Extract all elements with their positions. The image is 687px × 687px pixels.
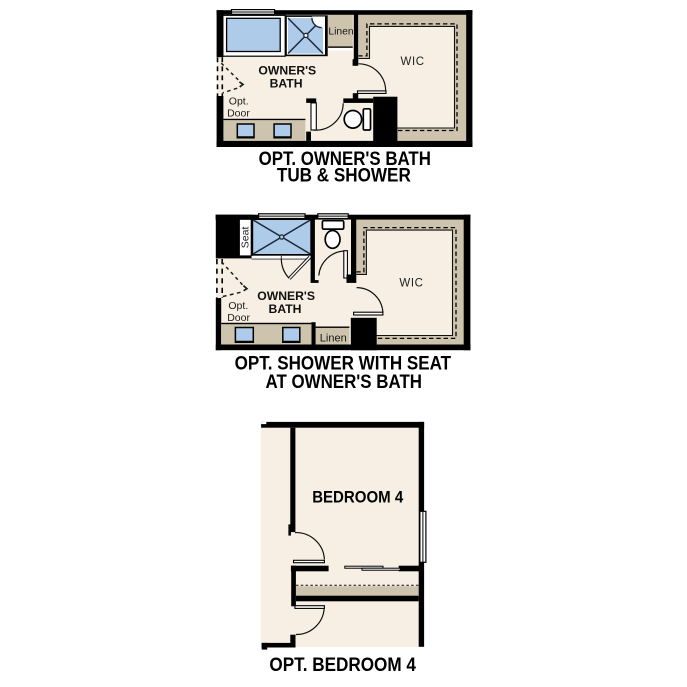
svg-text:AT OWNER'S BATH: AT OWNER'S BATH [266,372,423,393]
svg-text:WIC: WIC [401,56,425,68]
svg-text:BEDROOM 4: BEDROOM 4 [312,488,404,506]
svg-text:Linen: Linen [320,332,347,344]
svg-text:Opt.: Opt. [228,300,248,312]
svg-text:WIC: WIC [399,278,423,290]
svg-text:BATH: BATH [269,302,302,316]
svg-text:Door: Door [227,107,250,119]
svg-text:BATH: BATH [270,76,303,90]
svg-text:Door: Door [227,312,250,324]
svg-text:OPT. BEDROOM 4: OPT. BEDROOM 4 [269,655,416,676]
svg-text:Seat: Seat [239,227,251,249]
svg-text:Linen: Linen [328,26,353,37]
svg-text:Opt.: Opt. [229,95,249,107]
svg-text:TUB & SHOWER: TUB & SHOWER [277,166,411,187]
svg-text:OWNER'S: OWNER'S [257,289,315,303]
